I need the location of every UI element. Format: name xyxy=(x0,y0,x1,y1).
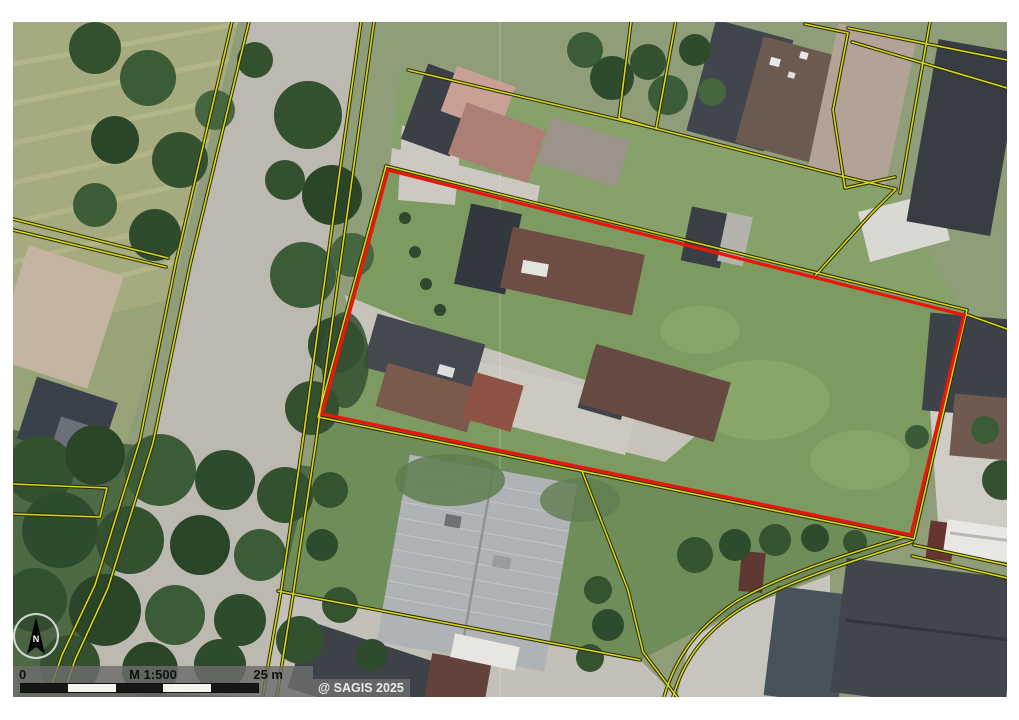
map-viewport[interactable] xyxy=(13,22,1007,697)
scale-bar-panel: 0 M 1:500 25 m xyxy=(13,666,313,697)
scale-distance-label: 25 m xyxy=(253,667,283,682)
gis-screenshot: N 0 M 1:500 25 m @ SAGIS 2025 xyxy=(0,0,1019,720)
scale-segment xyxy=(68,684,115,692)
scale-segment xyxy=(116,684,163,692)
scale-segment xyxy=(163,684,210,692)
aerial-imagery xyxy=(13,22,1007,697)
scale-segment xyxy=(211,684,258,692)
scale-bar xyxy=(20,683,259,693)
scale-segment xyxy=(21,684,68,692)
compass-north-label: N xyxy=(33,634,40,644)
north-arrow: N xyxy=(13,613,59,659)
scale-ratio-label: M 1:500 xyxy=(13,667,293,682)
map-attribution: @ SAGIS 2025 xyxy=(313,679,410,697)
